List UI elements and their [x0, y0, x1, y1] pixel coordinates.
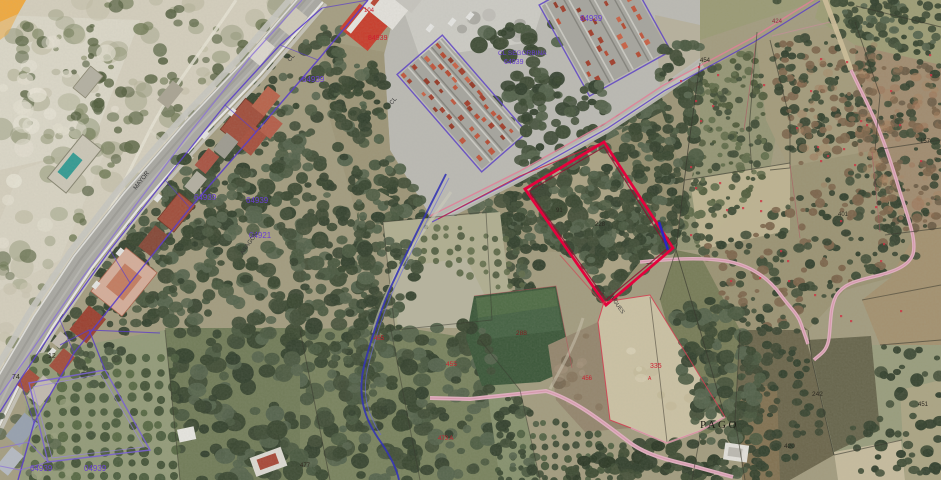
svg-text:455: 455 [374, 336, 385, 342]
svg-text:64939: 64939 [246, 196, 269, 205]
svg-text:04939: 04939 [84, 464, 107, 473]
svg-text:CL SEGORBINA: CL SEGORBINA [498, 50, 547, 57]
svg-text:91: 91 [556, 208, 563, 214]
svg-text:12: 12 [48, 353, 56, 360]
svg-text:473 A: 473 A [438, 436, 453, 442]
svg-text:477: 477 [300, 463, 311, 469]
svg-text:456: 456 [582, 376, 593, 382]
svg-text:74: 74 [12, 374, 20, 381]
svg-text:64939: 64939 [30, 464, 53, 473]
svg-text:64939: 64939 [194, 193, 217, 202]
svg-text:157: 157 [920, 139, 931, 145]
svg-text:454: 454 [700, 58, 711, 64]
svg-text:64939: 64939 [302, 75, 325, 84]
svg-text:84939: 84939 [368, 35, 388, 42]
svg-text:424: 424 [772, 19, 783, 25]
svg-text:242: 242 [812, 391, 823, 398]
svg-text:455: 455 [446, 361, 457, 368]
svg-text:288: 288 [516, 330, 527, 337]
svg-text:PAGO: PAGO [700, 419, 739, 431]
svg-text:335: 335 [650, 363, 662, 370]
svg-text:64939: 64939 [504, 59, 524, 66]
svg-text:401: 401 [838, 212, 849, 218]
svg-text:451: 451 [918, 402, 929, 408]
svg-text:228: 228 [595, 222, 606, 228]
svg-text:420: 420 [784, 443, 795, 450]
svg-text:104: 104 [364, 8, 375, 14]
svg-text:84939: 84939 [580, 14, 603, 23]
